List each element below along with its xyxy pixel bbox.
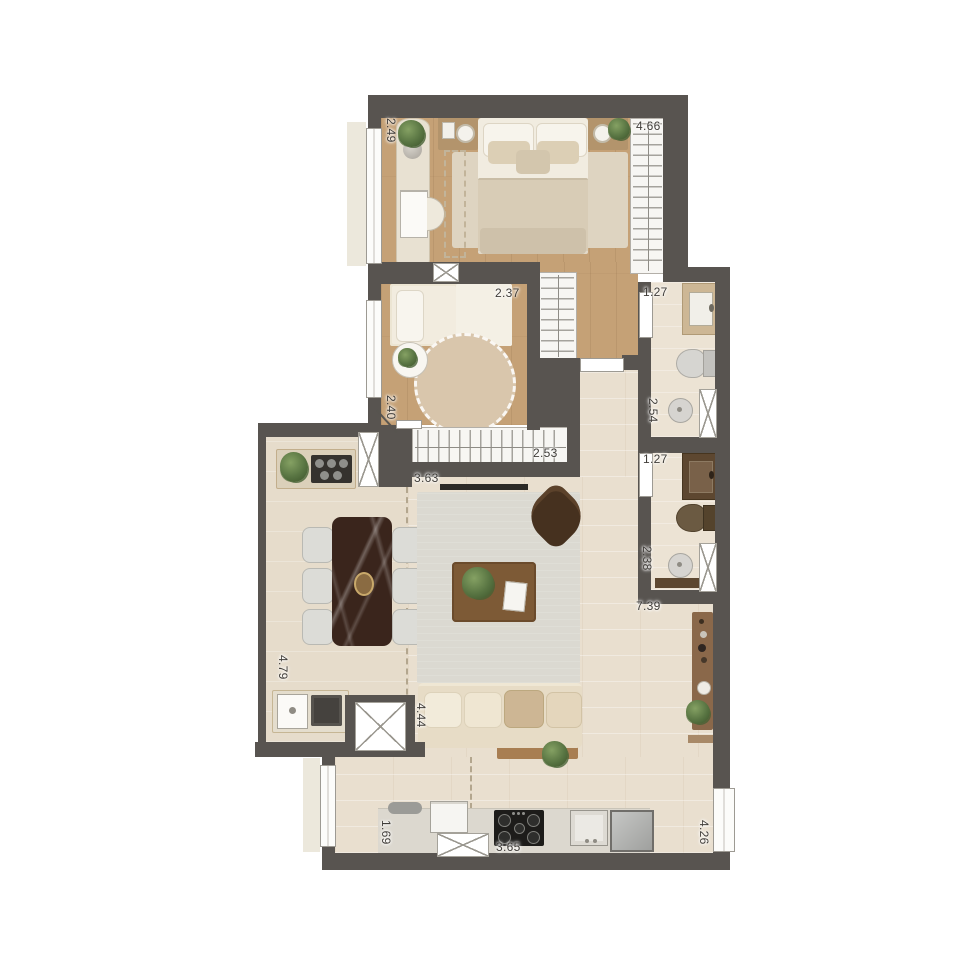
glass-panel	[358, 432, 379, 487]
vanity-plant	[398, 120, 425, 147]
dimension-bath1-width: 1.27	[643, 285, 668, 299]
balcony-grill2	[311, 695, 342, 726]
bedroom2-window	[366, 300, 382, 398]
dimension-bedroom2-width: 2.37	[495, 286, 520, 300]
wardrobe-projection-dashed	[444, 150, 466, 258]
wall-bottom	[322, 853, 730, 870]
sideboard-object-4	[701, 657, 707, 663]
wardrobe-rail	[558, 275, 560, 357]
wall-hall-left	[538, 358, 580, 427]
dimension-living-width: 3.63	[414, 471, 439, 485]
dimension-kitchen-counter: 3.65	[496, 840, 521, 854]
shaft	[355, 702, 406, 751]
dining-chair-left-1	[302, 527, 334, 563]
bedroom2-pillow	[396, 290, 424, 342]
master-window	[366, 128, 382, 264]
bath2-vanity	[682, 453, 719, 500]
tv	[440, 484, 528, 490]
bath1-shower	[699, 389, 717, 438]
wall-living-right	[713, 602, 730, 790]
hall-wardrobe	[538, 272, 577, 360]
dimension-sofa-wall: 4.44	[414, 703, 428, 728]
sideboard-object-1	[699, 619, 704, 624]
sideboard-object-3	[698, 644, 706, 652]
kitchen-window-right	[713, 788, 735, 852]
table-centerpiece	[354, 572, 374, 596]
dimension-kitchen-left: 1.69	[379, 820, 393, 845]
bath2-bench	[655, 578, 700, 588]
bedside-book	[442, 122, 455, 139]
dimension-bath2-width: 1.27	[643, 452, 668, 466]
wall-hall-door-right	[622, 355, 638, 370]
wall-bath-right	[715, 267, 730, 602]
dining-chair-left-2	[302, 568, 334, 604]
dimension-master-width: 2.49	[384, 118, 398, 143]
apartment-floor-plan: 2.49 4.66 2.37 1.27 2.40 2.54 2.53 1.27 …	[0, 0, 967, 967]
wall-bath-divider	[651, 437, 717, 453]
bedroom2-door-opening	[396, 420, 422, 429]
wall-balcony-rail	[258, 428, 266, 742]
master-closet	[630, 118, 665, 274]
sofa-cushion-4	[546, 692, 582, 728]
side-table-plant	[398, 348, 417, 367]
grill-counter-plant	[280, 452, 308, 482]
dimension-bath2-depth: 2.38	[640, 546, 654, 571]
kitchen-dishwasher	[610, 810, 654, 852]
sofa-cushion-2	[464, 692, 502, 728]
dimension-living-length: 7.39	[636, 599, 661, 613]
dining-chair-left-3	[302, 609, 334, 645]
bath2-shower	[699, 543, 717, 592]
nightstand-plant	[608, 118, 630, 140]
hall-door-opening	[580, 358, 624, 372]
dimension-hall-closet: 2.53	[533, 446, 558, 460]
kitchen-shaft	[437, 833, 489, 857]
kitchen-window-sill	[303, 758, 320, 852]
kitchen-window-left	[320, 765, 336, 847]
kitchen-partition-dashed	[470, 757, 472, 809]
wall-closet-stub	[567, 420, 580, 477]
dimension-balcony-depth: 4.79	[276, 655, 290, 680]
kitchen-oven	[430, 801, 468, 833]
sideboard-shelf	[688, 735, 715, 743]
bedroom2-round-rug	[414, 333, 516, 435]
closet-rail	[648, 121, 650, 271]
dimension-bedroom2-depth: 2.40	[384, 395, 398, 420]
bath1-pedestal-sink	[668, 398, 693, 423]
wall-right-upper	[663, 118, 688, 282]
vanity-dresser	[400, 190, 428, 238]
dimension-bath1-depth: 2.54	[646, 398, 660, 423]
sideboard-dish	[697, 681, 711, 695]
master-door-box	[433, 263, 459, 282]
dimension-kitchen-right: 4.26	[697, 820, 711, 845]
bath1-vanity	[682, 283, 719, 335]
master-bed-foot-throw	[480, 228, 586, 254]
master-bed-pillow-center	[516, 150, 550, 174]
dimension-master-closet: 4.66	[636, 119, 661, 133]
console-plant	[542, 741, 568, 767]
coffee-table-book	[503, 581, 528, 612]
kitchen-sink	[570, 810, 608, 846]
bedside-lamp-left	[456, 124, 475, 143]
kitchen-tray	[388, 802, 422, 814]
balcony-sink	[277, 694, 308, 729]
wall-top	[368, 95, 688, 118]
sideboard-object-2	[700, 631, 707, 638]
grill-cooktop	[311, 455, 352, 483]
sofa-cushion-3	[504, 690, 544, 728]
coffee-table-plant	[462, 567, 494, 599]
bath2-pedestal-sink	[668, 553, 693, 578]
master-window-sill	[347, 122, 366, 266]
sofa-cushion-1	[424, 692, 462, 728]
sideboard-plant	[686, 700, 710, 724]
